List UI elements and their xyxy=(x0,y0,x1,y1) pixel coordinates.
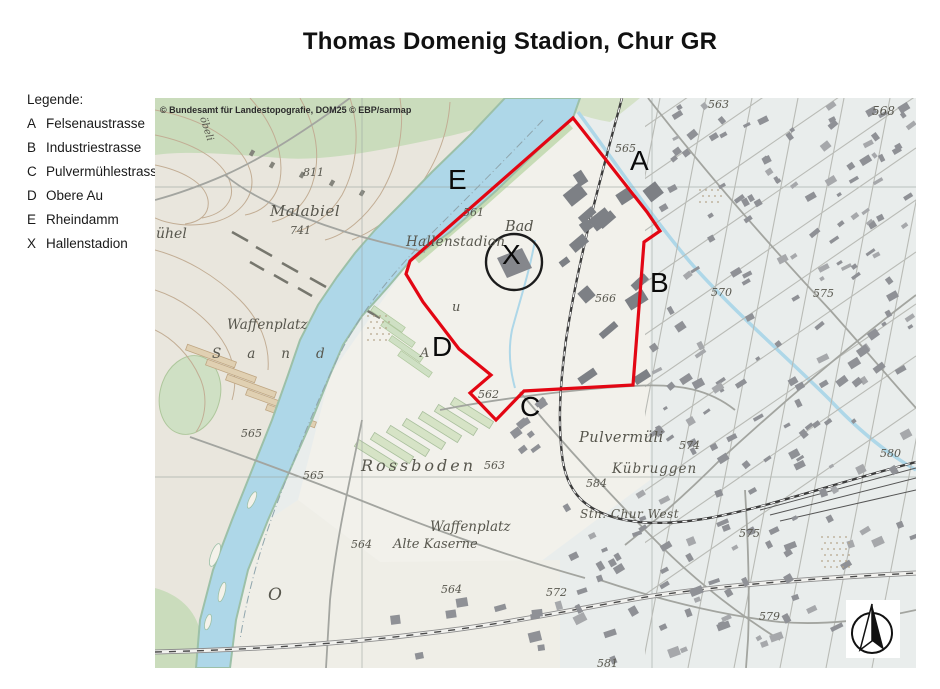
map-copyright: © Bundesamt für Landestopografie, DOM25 … xyxy=(160,105,412,115)
map-label-575: 575 xyxy=(813,287,834,300)
map-label-sand: Sand xyxy=(212,346,351,362)
page-title: Thomas Domenig Stadion, Chur GR xyxy=(70,28,940,56)
map-label-alte-kaserne: Alte Kaserne xyxy=(392,537,478,552)
map-label-o: O xyxy=(268,585,282,605)
map-label-584: 584 xyxy=(586,477,607,490)
map-label-564: 564 xyxy=(441,583,462,596)
map-label-572: 572 xyxy=(546,586,567,599)
legend-item-a: AFelsenaustrasse xyxy=(27,116,165,131)
marker-letter-x: X xyxy=(502,239,521,270)
map-label-562: 562 xyxy=(478,388,499,401)
map-label-a: A xyxy=(419,346,429,361)
marker-letter-b: B xyxy=(650,267,669,298)
legend-item-e: ERheindamm xyxy=(27,212,165,227)
map-label-pulverm-li: Pulvermüli xyxy=(578,430,664,446)
map-label-waffenplatz: Waffenplatz xyxy=(227,317,308,333)
legend: Legende: AFelsenaustrasse BIndustriestra… xyxy=(27,92,165,260)
legend-item-b: BIndustriestrasse xyxy=(27,140,165,155)
map-image: Malabiel741811ühelöbeliHallenstadionBad5… xyxy=(155,98,916,668)
map-label-570: 570 xyxy=(711,286,732,299)
marker-letter-d: D xyxy=(432,331,452,362)
map-label-561: 561 xyxy=(463,206,484,219)
marker-letter-e: E xyxy=(448,164,467,195)
map-label-563: 563 xyxy=(484,459,505,472)
map-label-u: u xyxy=(452,300,460,315)
map-label--hel: ühel xyxy=(156,226,187,242)
map-label-741: 741 xyxy=(290,224,311,237)
map-label-566: 566 xyxy=(595,292,616,305)
map-label-568: 568 xyxy=(872,104,895,118)
map-label-k-bruggen: Kübruggen xyxy=(611,461,697,477)
legend-item-c: CPulvermühlestrasse xyxy=(27,164,165,179)
map-label-hallenstadion: Hallenstadion xyxy=(405,234,505,250)
north-arrow xyxy=(846,600,900,658)
map-label-574: 574 xyxy=(679,439,700,452)
topo-map: Malabiel741811ühelöbeliHallenstadionBad5… xyxy=(155,98,916,668)
map-label-rossboden: Rossboden xyxy=(360,456,476,475)
map-label-malabiel: Malabiel xyxy=(269,202,340,220)
map-label-579: 579 xyxy=(759,610,780,623)
legend-heading: Legende: xyxy=(27,92,165,107)
map-label-575: 575 xyxy=(739,527,760,540)
map-label-581: 581 xyxy=(597,657,618,668)
map-label-waffenplatz: Waffenplatz xyxy=(430,519,511,535)
map-label-bad: Bad xyxy=(504,219,534,235)
legend-item-x: XHallenstadion xyxy=(27,236,165,251)
page: Thomas Domenig Stadion, Chur GR Legende:… xyxy=(0,0,940,689)
marker-letter-c: C xyxy=(520,391,540,422)
map-label-565: 565 xyxy=(241,427,262,440)
map-label-811: 811 xyxy=(303,166,324,179)
map-label-580: 580 xyxy=(880,447,901,460)
map-label-564: 564 xyxy=(351,538,372,551)
map-label-565: 565 xyxy=(303,469,324,482)
legend-item-d: DObere Au xyxy=(27,188,165,203)
map-label-stn-chur-west: Stn. Chur West xyxy=(580,507,679,521)
map-label-563: 563 xyxy=(708,98,729,111)
marker-letter-a: A xyxy=(630,145,649,176)
